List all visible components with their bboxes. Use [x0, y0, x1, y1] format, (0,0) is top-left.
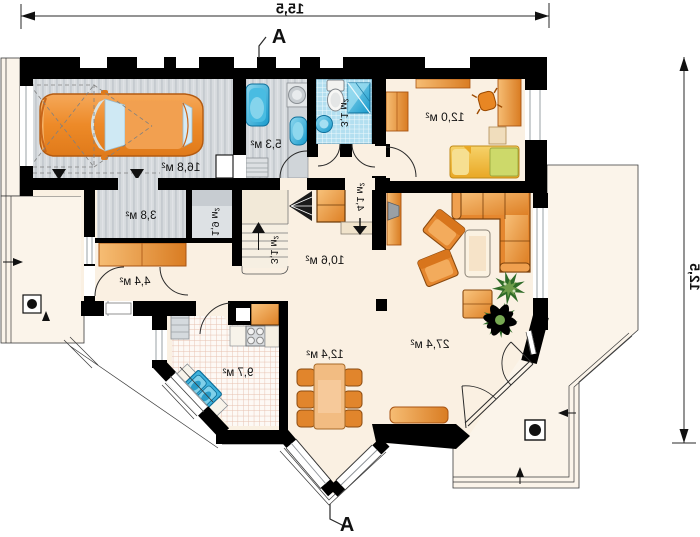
svg-text:12,4 м²: 12,4 м²: [306, 349, 343, 361]
svg-text:27,4 м²: 27,4 м²: [411, 337, 450, 351]
svg-text:16,8 м²: 16,8 м²: [162, 160, 201, 174]
svg-text:1,9 м²: 1,9 м²: [209, 207, 221, 236]
svg-text:12,0 м²: 12,0 м²: [426, 110, 465, 124]
svg-text:10,6 м²: 10,6 м²: [306, 253, 345, 267]
svg-text:A: A: [340, 514, 354, 536]
svg-text:3,8 м²: 3,8 м²: [125, 210, 156, 222]
svg-text:3,1 м²: 3,1 м²: [338, 98, 350, 127]
svg-text:12,5: 12,5: [687, 263, 700, 290]
svg-text:4,1 м²: 4,1 м²: [354, 182, 366, 211]
svg-text:9,7 м²: 9,7 м²: [222, 367, 253, 379]
svg-text:4,4 м²: 4,4 м²: [119, 276, 150, 288]
svg-text:A: A: [272, 26, 286, 48]
svg-text:3,1 м²: 3,1 м²: [268, 235, 280, 264]
svg-text:5,3 м²: 5,3 м²: [250, 139, 281, 151]
svg-text:15,5: 15,5: [276, 2, 304, 18]
